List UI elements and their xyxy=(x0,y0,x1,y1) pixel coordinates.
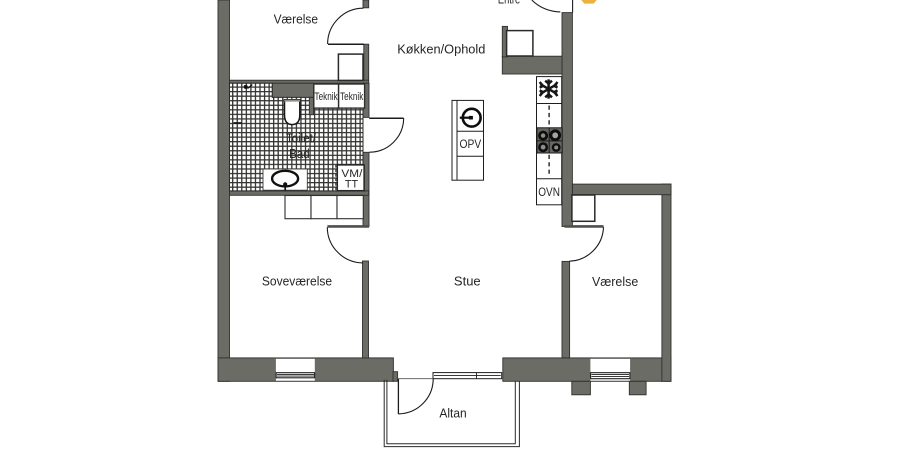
svg-text:Soveværelse: Soveværelse xyxy=(262,273,332,288)
svg-text:Værelse: Værelse xyxy=(274,12,318,27)
svg-text:Entré: Entré xyxy=(498,0,520,6)
svg-text:Køkken/Ophold: Køkken/Ophold xyxy=(397,41,485,56)
svg-text:Teknik: Teknik xyxy=(340,91,364,103)
svg-text:TT: TT xyxy=(345,179,359,191)
svg-text:Bad: Bad xyxy=(289,147,310,161)
svg-text:Altan: Altan xyxy=(439,405,466,420)
svg-text:Værelse: Værelse xyxy=(592,274,638,289)
svg-text:OVN: OVN xyxy=(538,185,560,199)
svg-text:Stue: Stue xyxy=(454,273,481,288)
svg-text:Toilet/: Toilet/ xyxy=(286,131,316,145)
svg-text:Teknik: Teknik xyxy=(315,91,339,103)
svg-text:OPV: OPV xyxy=(460,137,482,151)
